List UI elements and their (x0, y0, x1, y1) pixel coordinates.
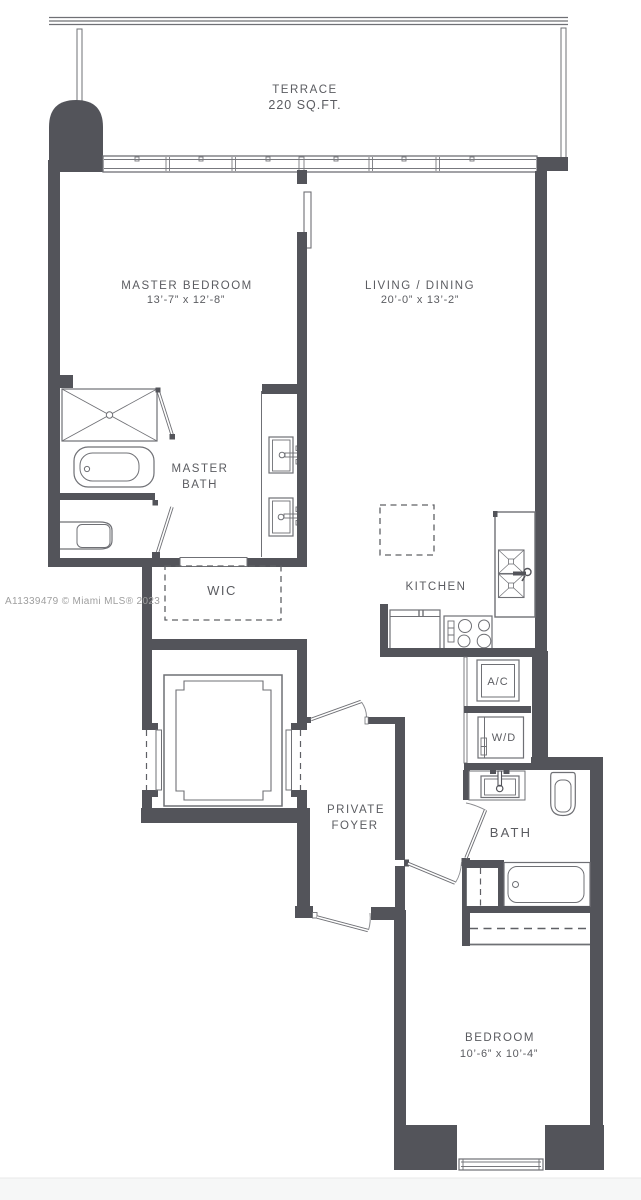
svg-text:FOYER: FOYER (331, 820, 378, 832)
svg-text:13’-7” x 12’-8”: 13’-7” x 12’-8” (147, 294, 225, 306)
svg-text:A/C: A/C (487, 676, 508, 688)
svg-text:220 SQ.FT.: 220 SQ.FT. (268, 98, 341, 112)
svg-text:MASTER BEDROOM: MASTER BEDROOM (121, 280, 253, 292)
svg-text:W/D: W/D (492, 732, 516, 744)
svg-text:LIVING / DINING: LIVING / DINING (365, 280, 475, 292)
svg-text:BATH: BATH (182, 479, 218, 491)
svg-text:BEDROOM: BEDROOM (465, 1032, 535, 1044)
svg-text:MASTER: MASTER (172, 463, 229, 475)
svg-text:BATH: BATH (490, 825, 533, 840)
svg-text:KITCHEN: KITCHEN (406, 581, 467, 593)
svg-text:20’-0” x 13’-2”: 20’-0” x 13’-2” (381, 294, 459, 306)
svg-text:WIC: WIC (207, 583, 237, 598)
svg-text:TERRACE: TERRACE (272, 84, 337, 96)
svg-text:10’-6” x 10’-4”: 10’-6” x 10’-4” (460, 1048, 538, 1060)
svg-text:PRIVATE: PRIVATE (327, 804, 385, 816)
svg-text:A11339479 © Miami MLS® 2023: A11339479 © Miami MLS® 2023 (5, 596, 160, 607)
